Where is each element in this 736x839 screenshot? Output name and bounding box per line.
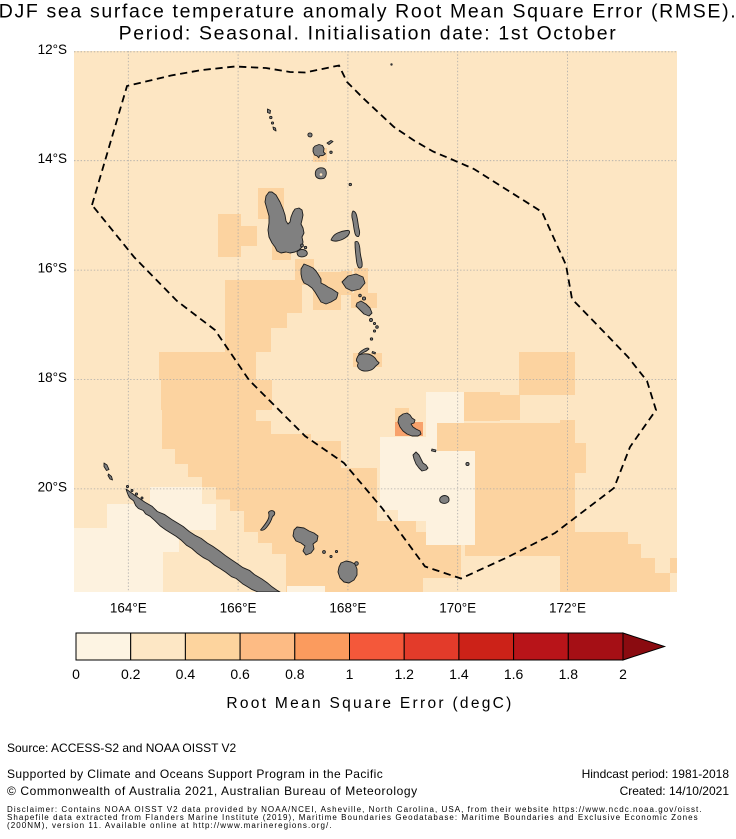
svg-text:Source: ACCESS-S2 and NOAA OIS: Source: ACCESS-S2 and NOAA OISST V2 xyxy=(7,741,237,755)
svg-text:0.8: 0.8 xyxy=(285,666,305,682)
svg-text:Hindcast period: 1981-2018: Hindcast period: 1981-2018 xyxy=(582,767,730,781)
svg-text:DJF sea surface temperature an: DJF sea surface temperature anomaly Root… xyxy=(0,1,736,23)
svg-text:166°E: 166°E xyxy=(220,601,257,616)
svg-text:0.4: 0.4 xyxy=(176,666,196,682)
svg-text:1: 1 xyxy=(346,666,354,682)
svg-text:Period: Seasonal. Initialisati: Period: Seasonal. Initialisation date: 1… xyxy=(119,23,618,45)
svg-text:(200NM), version 11. Available: (200NM), version 11. Available online at… xyxy=(7,821,333,830)
svg-text:20°S: 20°S xyxy=(38,480,67,495)
svg-text:1.6: 1.6 xyxy=(504,666,524,682)
svg-text:1.4: 1.4 xyxy=(449,666,469,682)
svg-text:0: 0 xyxy=(72,666,80,682)
svg-text:170°E: 170°E xyxy=(439,601,476,616)
svg-text:© Commonwealth of Australia 20: © Commonwealth of Australia 2021, Austra… xyxy=(7,784,418,798)
svg-text:Root Mean Square Error (degC): Root Mean Square Error (degC) xyxy=(226,695,513,712)
svg-text:16°S: 16°S xyxy=(38,261,67,276)
svg-text:168°E: 168°E xyxy=(329,601,366,616)
svg-text:14°S: 14°S xyxy=(38,151,67,166)
svg-text:164°E: 164°E xyxy=(110,601,147,616)
svg-text:Created: 14/10/2021: Created: 14/10/2021 xyxy=(620,784,730,798)
svg-text:18°S: 18°S xyxy=(38,370,67,385)
svg-text:1.8: 1.8 xyxy=(559,666,579,682)
svg-text:2: 2 xyxy=(619,666,627,682)
svg-text:0.2: 0.2 xyxy=(121,666,141,682)
svg-text:1.2: 1.2 xyxy=(394,666,414,682)
svg-text:172°E: 172°E xyxy=(549,601,586,616)
svg-text:Supported by Climate and Ocean: Supported by Climate and Oceans Support … xyxy=(7,767,383,781)
svg-text:0.6: 0.6 xyxy=(230,666,250,682)
svg-text:12°S: 12°S xyxy=(38,42,67,57)
